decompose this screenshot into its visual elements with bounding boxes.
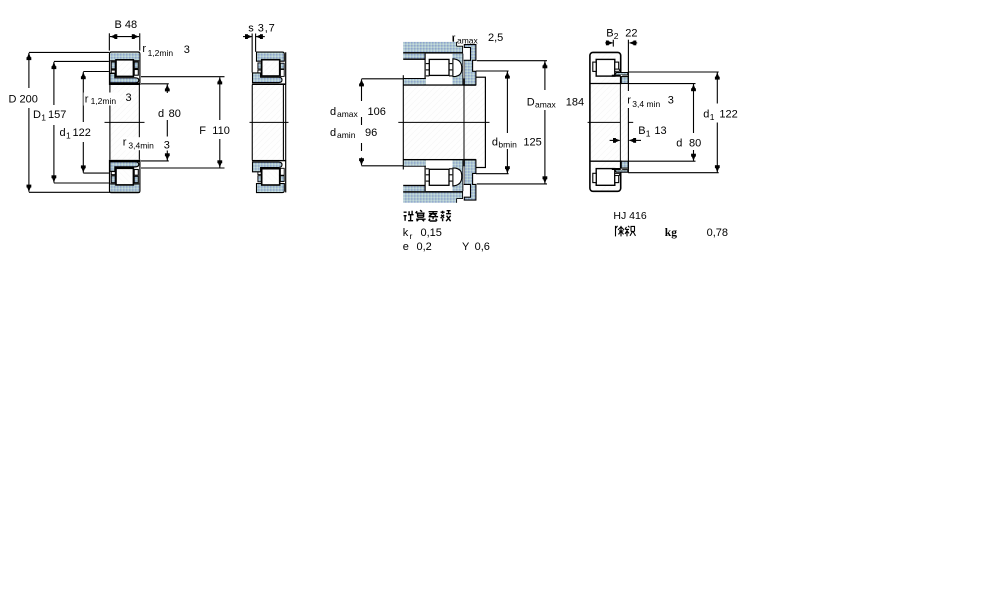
svg-text:e: e [403,241,409,253]
svg-text:1: 1 [41,113,46,123]
svg-text:B 48: B 48 [115,19,138,31]
svg-text:k: k [403,227,409,239]
svg-text:3: 3 [668,95,674,107]
svg-text:s: s [248,22,254,34]
svg-text:d: d [703,109,709,121]
svg-text:r: r [452,33,456,45]
svg-text:13: 13 [654,125,666,137]
svg-text:r: r [142,43,146,55]
svg-text:r: r [123,137,127,149]
svg-text:125: 125 [523,136,541,148]
svg-text:184: 184 [566,96,584,108]
svg-text:r: r [627,94,631,106]
svg-text:3: 3 [164,140,170,152]
svg-text:1: 1 [710,112,715,122]
svg-text:3: 3 [126,92,132,104]
svg-text:1: 1 [66,131,71,141]
svg-text:D: D [527,96,535,108]
svg-text:3: 3 [184,44,190,56]
svg-text:122: 122 [73,127,91,139]
svg-text:Y: Y [462,241,470,253]
svg-text:D 200: D 200 [9,93,38,105]
svg-text:0,6: 0,6 [475,241,490,253]
svg-text:122: 122 [719,109,737,121]
svg-text:2,5: 2,5 [488,32,503,44]
svg-text:0,78: 0,78 [707,227,728,239]
svg-text:r: r [410,231,413,241]
svg-text:106: 106 [368,106,386,118]
svg-text:3,7: 3,7 [258,22,276,34]
svg-text:157: 157 [48,109,66,121]
svg-text:B: B [606,27,613,39]
svg-text:d: d [330,106,336,118]
svg-text:3,4 min: 3,4 min [632,99,660,109]
svg-text:amin: amin [337,130,356,140]
svg-text:F: F [199,125,206,137]
svg-text:96: 96 [365,127,377,139]
svg-text:d: d [60,127,66,139]
svg-text:110: 110 [212,125,230,137]
svg-text:amax: amax [457,36,479,46]
svg-text:amax: amax [337,109,359,119]
svg-text:80: 80 [169,108,181,120]
svg-text:1,2min: 1,2min [91,96,117,106]
svg-text:bmin: bmin [498,140,517,150]
svg-text:80: 80 [689,137,701,149]
svg-text:HJ 416: HJ 416 [613,210,646,222]
svg-text:0,15: 0,15 [421,227,442,239]
svg-text:2: 2 [614,31,619,41]
svg-text:kg: kg [665,227,677,239]
svg-text:amax: amax [535,100,557,110]
svg-text:D: D [33,109,41,121]
svg-text:B: B [638,125,645,137]
svg-text:r: r [85,93,89,105]
svg-text:d: d [330,127,336,139]
svg-text:d: d [676,137,682,149]
svg-text:1: 1 [646,128,651,138]
svg-text:d: d [492,136,498,148]
svg-text:3,4min: 3,4min [128,140,154,150]
svg-text:22: 22 [625,27,637,39]
svg-text:1,2min: 1,2min [148,48,174,58]
svg-text:0,2: 0,2 [417,241,432,253]
svg-text:d: d [158,108,164,120]
